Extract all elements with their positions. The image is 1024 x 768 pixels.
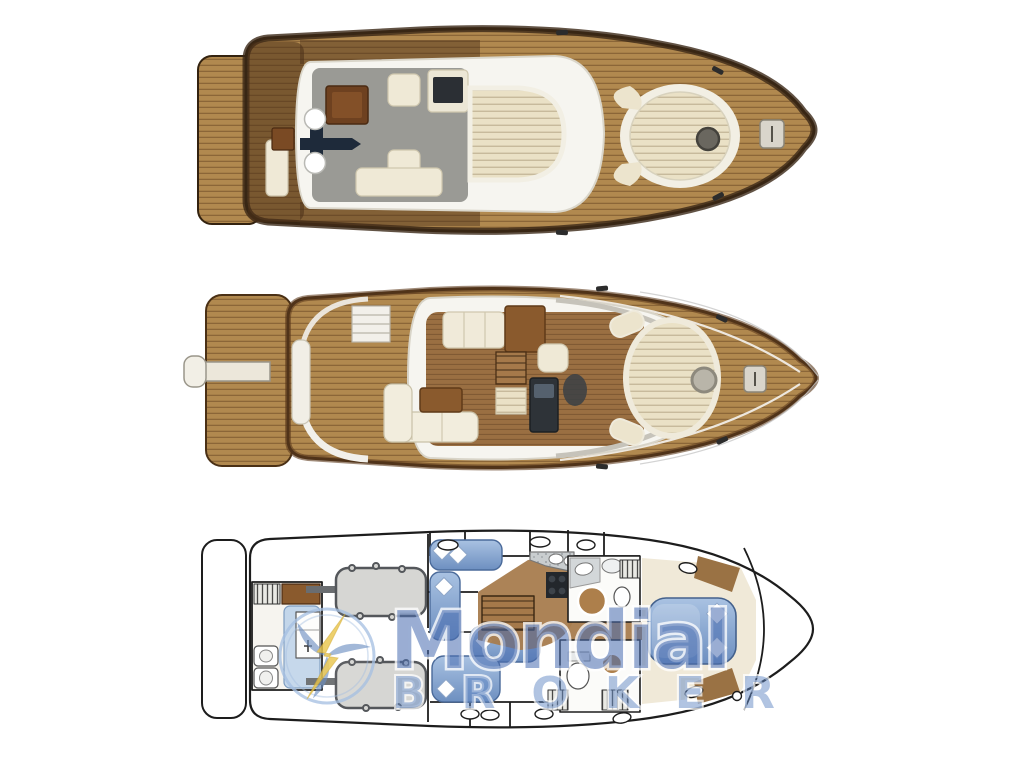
instrument-panel	[433, 77, 463, 103]
vent-grate	[620, 560, 640, 578]
sink	[549, 554, 563, 564]
flybridge-table-top	[332, 92, 362, 118]
yacht-deck-plans-image: Mondial BROKER	[0, 0, 1024, 768]
searchlight	[305, 153, 326, 174]
helm-screens	[534, 384, 554, 398]
aft-table	[272, 128, 294, 150]
flybridge-bench	[356, 168, 442, 196]
flybridge-stairs	[352, 306, 390, 342]
basin	[602, 559, 622, 573]
companionway-stairs	[496, 352, 526, 384]
main-deck-plan	[184, 285, 818, 469]
ladder	[254, 584, 280, 604]
tv-cabinet	[505, 306, 545, 352]
helm-seat-port	[388, 74, 420, 106]
transom-seat	[292, 340, 310, 424]
radar-dome	[305, 109, 326, 130]
flybridge-deck-plan	[198, 29, 814, 236]
flybridge-sunpad	[470, 88, 564, 180]
watermark-logo	[280, 609, 374, 703]
helm-seat	[538, 344, 568, 372]
watermark-subtitle: BROKER	[392, 668, 811, 719]
deck-hatch	[692, 368, 716, 392]
sideboard	[496, 388, 526, 414]
companionway-opening	[563, 374, 587, 406]
deck-plans-svg: Mondial BROKER	[0, 0, 1024, 768]
coffee-table	[420, 388, 462, 412]
deck-hatch	[697, 128, 719, 150]
swim-platform	[202, 540, 246, 718]
salon-sofa	[443, 312, 505, 348]
